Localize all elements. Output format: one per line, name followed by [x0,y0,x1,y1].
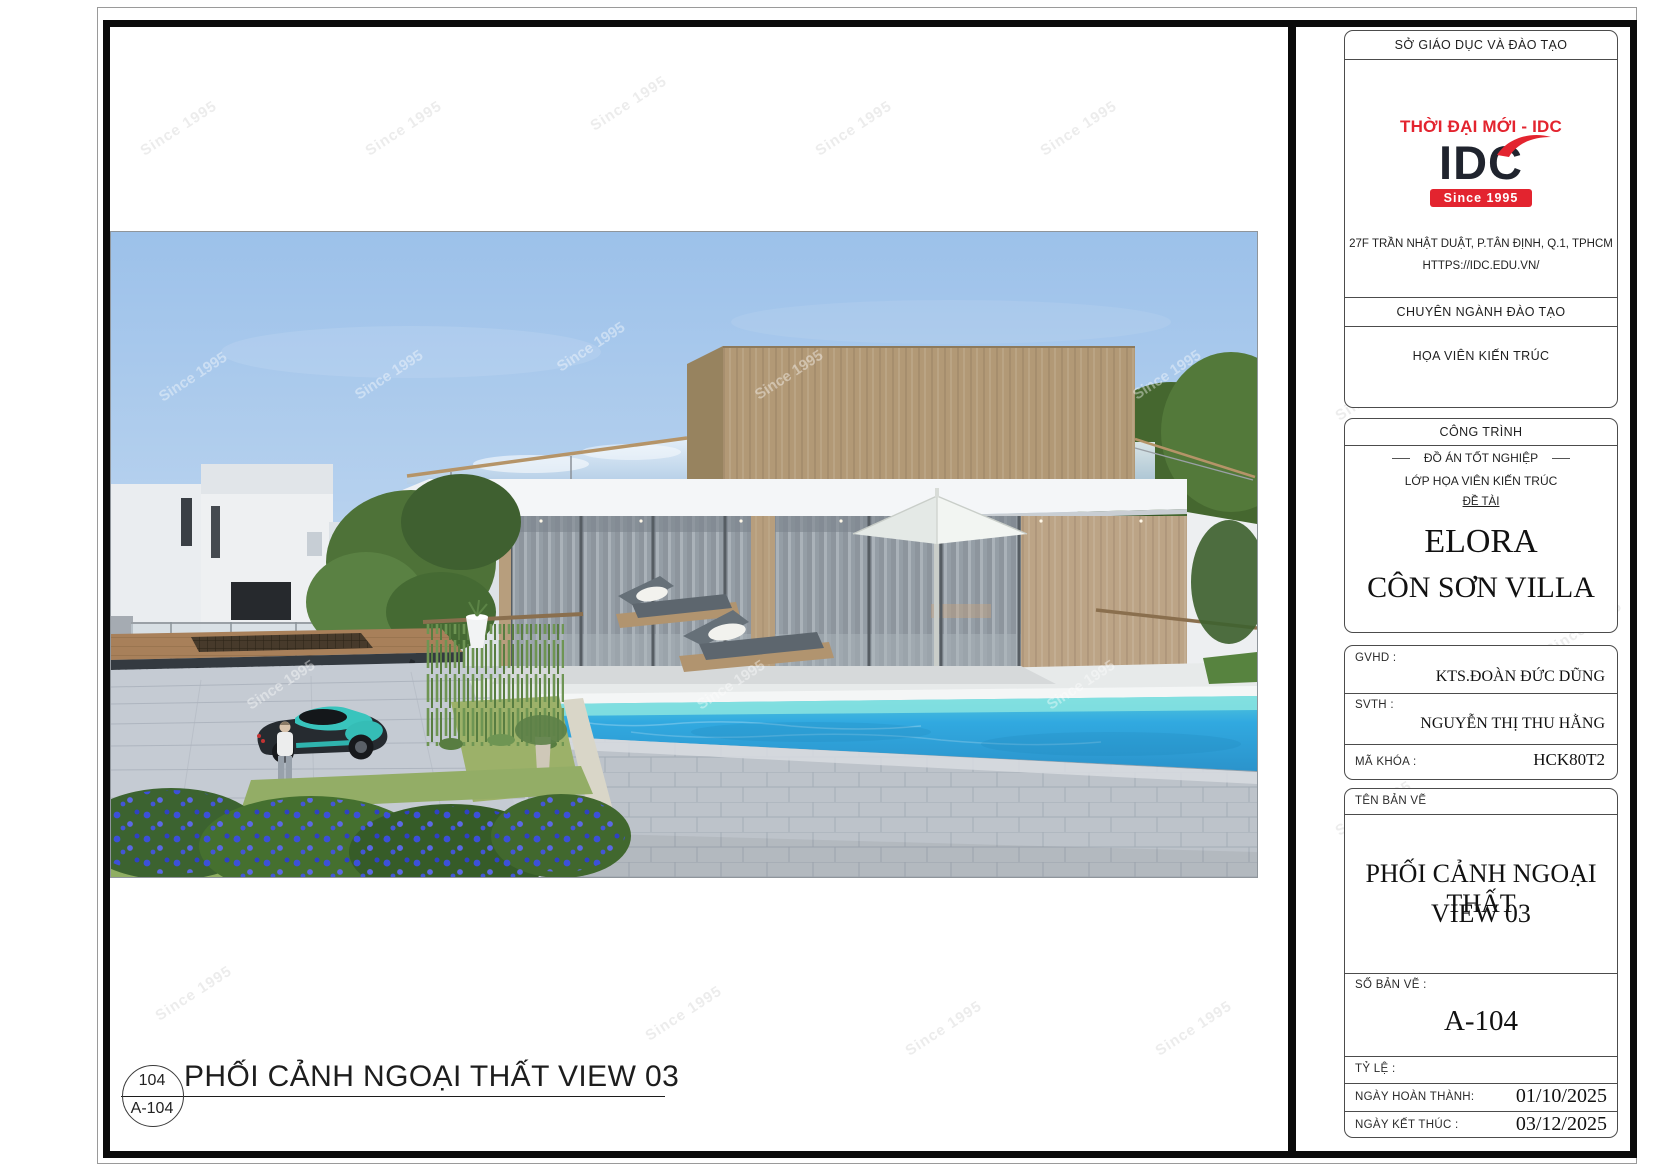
address-line2: HTTPS://IDC.EDU.VN/ [1345,260,1617,272]
done-value: 01/10/2025 [1516,1085,1607,1108]
training-value: HỌA VIÊN KIẾN TRÚC [1345,349,1617,363]
sobanve-value: A-104 [1345,1005,1617,1038]
callout-number: 104 [122,1072,182,1090]
project-header: CÔNG TRÌNH [1345,425,1617,439]
svth-label: SVTH : [1355,699,1394,711]
dash-left [1392,458,1410,459]
titleblock-people-box: GVHD : KTS.ĐOÀN ĐỨC DŨNG SVTH : NGUYỄN T… [1344,645,1618,780]
brand-since-badge: Since 1995 [1430,189,1533,207]
address-line1: 27F TRẦN NHẬT DUẬT, P.TÂN ĐỊNH, Q.1, TPH… [1345,238,1617,250]
makhoa-label: MÃ KHÓA : [1355,756,1417,768]
project-type: ĐỒ ÁN TỐT NGHIỆP [1424,451,1538,465]
roof-box-side [687,346,723,482]
makhoa-value: HCK80T2 [1533,750,1605,770]
titleblock-divider-line [1288,20,1296,1151]
project-name-line2: CÔN SƠN VILLA [1345,571,1617,605]
project-topic-label: ĐỀ TÀI [1345,496,1617,508]
training-header: CHUYÊN NGÀNH ĐÀO TẠO [1345,305,1617,319]
done-label: NGÀY HOÀN THÀNH: [1355,1091,1474,1103]
dash-right [1552,458,1570,459]
end-label: NGÀY KẾT THÚC : [1355,1119,1459,1131]
svth-value: NGUYỄN THỊ THU HẰNG [1420,715,1605,733]
sobanve-label: SỐ BẢN VẼ : [1355,979,1427,991]
idc-logo: IDC [1345,139,1617,186]
titleblock-org-box: SỞ GIÁO DỤC VÀ ĐÀO TẠO THỜI ĐẠI MỚI - ID… [1344,30,1618,408]
exterior-render: Since 1995 Since 1995 Since 1995 Since 1… [110,231,1258,878]
brand-tagline: THỜI ĐẠI MỚI - IDC [1345,117,1617,137]
titleblock-drawing-box: TÊN BẢN VẼ PHỐI CẢNH NGOẠI THẤT VIEW 03 … [1344,788,1618,1138]
tenbanve-label: TÊN BẢN VẼ [1355,795,1426,807]
project-class: LỚP HỌA VIÊN KIẾN TRÚC [1345,474,1617,488]
gvhd-label: GVHD : [1355,652,1396,664]
sheet-drawing-title: PHỐI CẢNH NGOẠI THẤT VIEW 03 [184,1060,679,1094]
idc-logo-swoosh-icon [1495,131,1555,161]
tyle-label: TỶ LỆ : [1355,1063,1395,1075]
tenbanve-line2: VIEW 03 [1345,899,1617,929]
project-name-line1: ELORA [1345,523,1617,561]
gvhd-value: KTS.ĐOÀN ĐỨC DŨNG [1436,668,1605,686]
end-value: 03/12/2025 [1516,1113,1607,1136]
titleblock-project-box: CÔNG TRÌNH ĐỒ ÁN TỐT NGHIỆP LỚP HỌA VIÊN… [1344,418,1618,633]
villa-scene: Since 1995 Since 1995 Since 1995 Since 1… [111,232,1257,877]
drawing-sheet: Since 1995 Since 1995 Since 1995 Since 1… [0,0,1655,1170]
title-underline [121,1096,665,1097]
callout-code: A-104 [122,1100,182,1118]
org-header: SỞ GIÁO DỤC VÀ ĐÀO TẠO [1345,38,1617,52]
